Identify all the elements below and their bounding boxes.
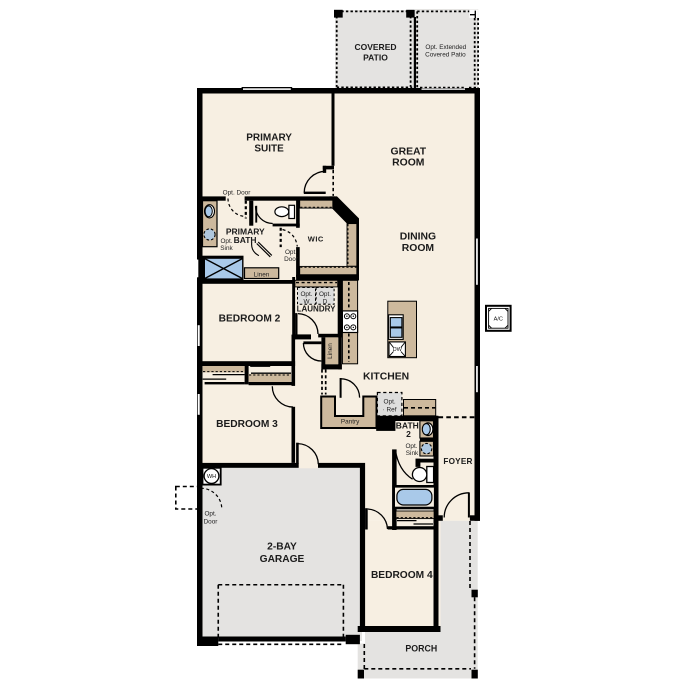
svg-text:2: 2	[406, 429, 411, 439]
svg-text:Opt.: Opt.	[384, 399, 396, 406]
svg-text:Pantry: Pantry	[341, 418, 360, 425]
svg-text:2-BAY: 2-BAY	[267, 542, 297, 553]
svg-text:LAUNDRY: LAUNDRY	[297, 305, 336, 314]
svg-text:SUITE: SUITE	[254, 144, 284, 155]
svg-text:Opt.: Opt.	[405, 443, 417, 450]
svg-text:PATIO: PATIO	[363, 53, 388, 63]
svg-text:ROOM: ROOM	[392, 158, 424, 169]
svg-text:Opt.: Opt.	[300, 291, 312, 298]
svg-text:COVERED: COVERED	[354, 42, 396, 52]
svg-text:Sink: Sink	[220, 245, 233, 252]
svg-text:Opt.: Opt.	[319, 291, 331, 298]
svg-text:BEDROOM 2: BEDROOM 2	[219, 313, 281, 324]
svg-text:Covered Patio: Covered Patio	[425, 52, 466, 59]
svg-text:A/C: A/C	[494, 317, 503, 323]
svg-text:KITCHEN: KITCHEN	[363, 372, 409, 383]
svg-text:DW: DW	[393, 347, 403, 353]
svg-text:FOYER: FOYER	[443, 457, 472, 466]
svg-text:Opt. Extended: Opt. Extended	[425, 44, 466, 51]
svg-text:GARAGE: GARAGE	[260, 554, 305, 565]
svg-text:PORCH: PORCH	[405, 644, 437, 654]
svg-text:WIC: WIC	[308, 235, 324, 244]
svg-text:GREAT: GREAT	[390, 146, 426, 157]
svg-text:Linen: Linen	[327, 343, 334, 359]
svg-text:BEDROOM 4: BEDROOM 4	[371, 570, 433, 581]
svg-text:ROOM: ROOM	[402, 243, 434, 254]
svg-text:Door: Door	[204, 519, 219, 526]
svg-text:Opt.: Opt.	[285, 249, 297, 256]
svg-text:· Ref: · Ref	[383, 407, 397, 414]
svg-text:PRIMARY: PRIMARY	[246, 132, 292, 143]
svg-text:Sink: Sink	[406, 450, 419, 457]
svg-text:Opt.: Opt.	[204, 511, 216, 518]
svg-text:DINING: DINING	[400, 232, 436, 243]
svg-text:WH: WH	[207, 474, 216, 480]
svg-text:Linen: Linen	[254, 271, 270, 278]
svg-text:BATH: BATH	[234, 235, 257, 245]
svg-text:Opt. Door: Opt. Door	[223, 190, 252, 197]
svg-text:Opt.: Opt.	[220, 238, 232, 245]
svg-text:Door: Door	[284, 256, 299, 263]
svg-text:BEDROOM 3: BEDROOM 3	[216, 419, 278, 430]
